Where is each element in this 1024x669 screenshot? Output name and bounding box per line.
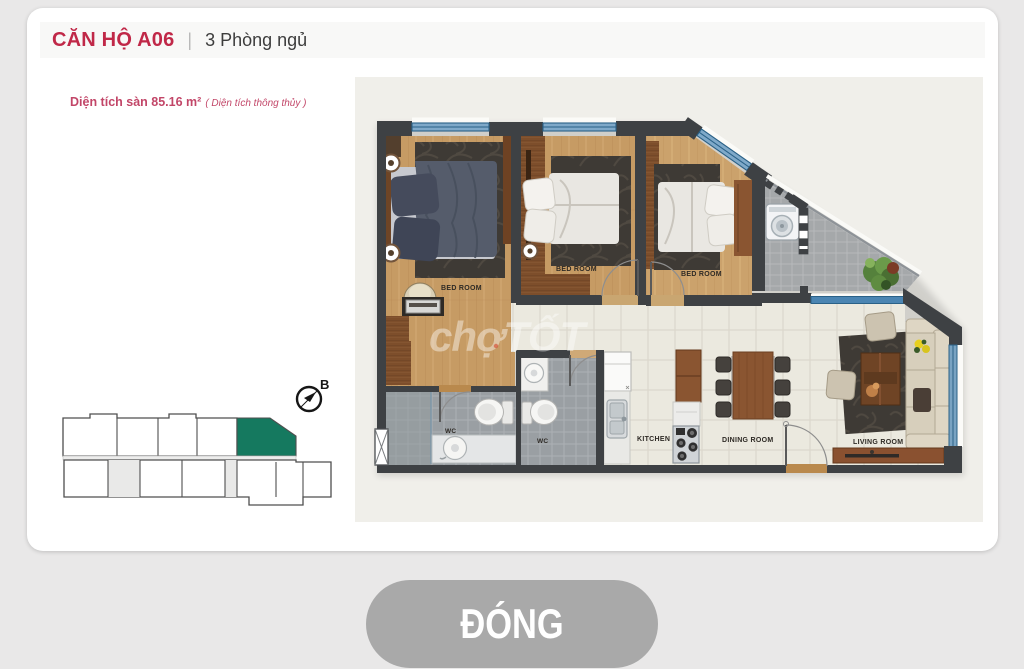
- svg-text:BED ROOM: BED ROOM: [681, 271, 722, 278]
- svg-text:B: B: [320, 377, 329, 392]
- svg-text:DINING ROOM: DINING ROOM: [722, 437, 774, 444]
- svg-text:KITCHEN: KITCHEN: [637, 436, 670, 443]
- svg-text:BED ROOM: BED ROOM: [441, 285, 482, 292]
- svg-text:WC: WC: [445, 428, 456, 435]
- svg-text:LIVING ROOM: LIVING ROOM: [853, 439, 903, 446]
- svg-text:WC: WC: [537, 438, 548, 445]
- svg-text:chợTỐT: chợTỐT: [429, 312, 589, 360]
- svg-text:BED ROOM: BED ROOM: [556, 266, 597, 273]
